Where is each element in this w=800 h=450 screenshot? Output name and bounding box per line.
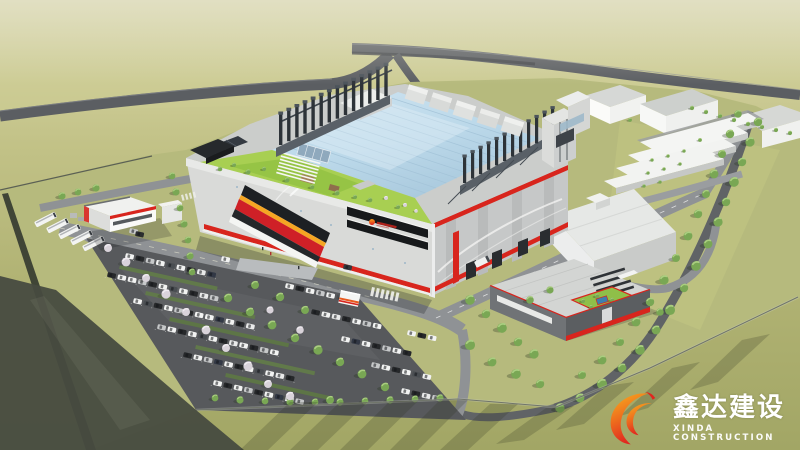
company-subtitle: XINDA CONSTRUCTION — [673, 425, 798, 442]
company-wordmark: 鑫达建设 XINDA CONSTRUCTION — [673, 395, 798, 442]
architectural-rendering: 鑫达建设 XINDA CONSTRUCTION — [0, 0, 800, 450]
rendering-canvas — [0, 0, 800, 450]
company-name: 鑫达建设 — [673, 395, 798, 421]
watermark: 鑫达建设 XINDA CONSTRUCTION — [608, 390, 798, 448]
red-vertical-accent — [453, 231, 459, 285]
flame-swirl-icon — [608, 391, 664, 447]
atmospheric-haze — [0, 0, 800, 85]
